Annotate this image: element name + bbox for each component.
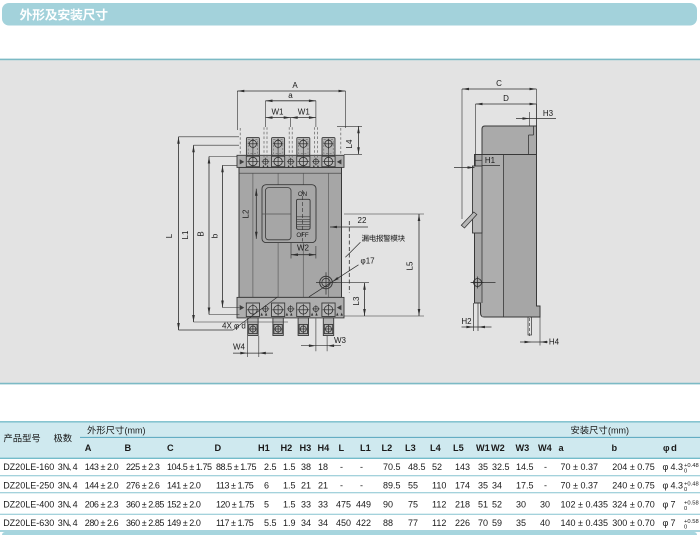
svg-text:4: 4 (73, 500, 78, 510)
svg-text:143: 143 (455, 462, 470, 472)
svg-text:0: 0 (684, 469, 687, 475)
svg-text:-: - (544, 462, 547, 472)
svg-text:52: 52 (432, 462, 442, 472)
svg-text:360 ± 2.85: 360 ± 2.85 (126, 518, 164, 528)
svg-text:b: b (612, 443, 618, 453)
svg-text:35: 35 (478, 481, 488, 491)
svg-text:143 ± 2.0: 143 ± 2.0 (85, 462, 119, 472)
svg-text:A: A (292, 81, 298, 90)
svg-text:33: 33 (318, 500, 328, 510)
svg-text:H4: H4 (318, 443, 331, 453)
svg-text:4: 4 (73, 462, 78, 472)
svg-text:B: B (125, 443, 132, 453)
svg-text:1.9: 1.9 (283, 518, 296, 528)
svg-text:W4: W4 (233, 342, 246, 351)
svg-text:L2: L2 (242, 209, 251, 218)
svg-text:21: 21 (301, 481, 311, 491)
svg-text:7: 7 (671, 500, 676, 510)
svg-text:a: a (559, 443, 565, 453)
svg-text:DZ20LE-160: DZ20LE-160 (3, 462, 54, 472)
svg-text:48.5: 48.5 (408, 462, 426, 472)
svg-text:1.5: 1.5 (283, 500, 296, 510)
svg-text:144 ± 2.0: 144 ± 2.0 (85, 481, 119, 491)
svg-text:324 ± 0.70: 324 ± 0.70 (612, 500, 654, 510)
svg-text:70.5: 70.5 (383, 462, 401, 472)
svg-text:70: 70 (478, 518, 488, 528)
svg-text:DZ20LE-400: DZ20LE-400 (3, 500, 54, 510)
svg-text:L: L (165, 233, 174, 238)
svg-text:φ: φ (663, 518, 669, 528)
svg-text:152 ± 2.0: 152 ± 2.0 (167, 500, 201, 510)
svg-text:280 ± 2.6: 280 ± 2.6 (85, 518, 119, 528)
svg-text:L: L (339, 443, 345, 453)
svg-text:L1: L1 (181, 230, 190, 239)
svg-text:4.3: 4.3 (671, 481, 684, 491)
svg-text:1.5: 1.5 (283, 481, 296, 491)
svg-text:1.5: 1.5 (283, 462, 296, 472)
svg-text:120 ± 1.75: 120 ± 1.75 (216, 500, 254, 510)
svg-text:-: - (544, 481, 547, 491)
svg-text:38: 38 (301, 462, 311, 472)
svg-text:34: 34 (301, 518, 311, 528)
svg-text:21: 21 (318, 481, 328, 491)
svg-text:D: D (215, 443, 222, 453)
svg-text:55: 55 (408, 481, 418, 491)
svg-text:-: - (360, 462, 363, 472)
svg-text:L1: L1 (360, 443, 371, 453)
svg-text:5.5: 5.5 (264, 518, 277, 528)
svg-text:5: 5 (264, 500, 269, 510)
svg-text:77: 77 (408, 518, 418, 528)
svg-text:B: B (197, 231, 206, 236)
svg-text:φ: φ (663, 500, 669, 510)
svg-text:-: - (340, 462, 343, 472)
svg-text:240 ± 0.75: 240 ± 0.75 (612, 481, 654, 491)
svg-text:102 ± 0.435: 102 ± 0.435 (561, 500, 608, 510)
svg-text:DZ20LE-250: DZ20LE-250 (3, 481, 54, 491)
svg-text:52: 52 (492, 500, 502, 510)
svg-text:112: 112 (432, 518, 446, 528)
svg-text:141 ± 2.0: 141 ± 2.0 (167, 481, 201, 491)
svg-text:φ: φ (663, 443, 670, 453)
svg-text:a: a (288, 91, 293, 100)
svg-text:(mm): (mm) (608, 426, 629, 436)
svg-text:35: 35 (478, 462, 488, 472)
svg-text:35: 35 (516, 518, 526, 528)
svg-text:DZ20LE-630: DZ20LE-630 (3, 518, 54, 528)
svg-text:4: 4 (73, 481, 78, 491)
svg-text:51: 51 (478, 500, 488, 510)
svg-text:225 ± 2.3: 225 ± 2.3 (126, 462, 160, 472)
svg-text:φ17: φ17 (361, 256, 376, 265)
svg-text:32.5: 32.5 (492, 462, 510, 472)
svg-text:276 ± 2.6: 276 ± 2.6 (126, 481, 160, 491)
svg-text:H3: H3 (543, 109, 554, 118)
svg-text:H1: H1 (485, 156, 496, 165)
svg-text:L5: L5 (406, 261, 415, 270)
svg-text:C: C (496, 79, 502, 88)
svg-text:4.3: 4.3 (671, 462, 684, 472)
svg-text:3N: 3N (58, 481, 70, 491)
svg-text:89.5: 89.5 (383, 481, 401, 491)
svg-text:17.5: 17.5 (516, 481, 534, 491)
svg-text:3N: 3N (58, 500, 70, 510)
svg-text:6: 6 (264, 481, 269, 491)
svg-text:33: 33 (301, 500, 311, 510)
svg-text:75: 75 (408, 500, 418, 510)
svg-text:149 ± 2.0: 149 ± 2.0 (167, 518, 201, 528)
svg-text:W3: W3 (516, 443, 530, 453)
svg-text:300 ± 0.70: 300 ± 0.70 (612, 518, 654, 528)
svg-text:W3: W3 (334, 336, 347, 345)
svg-text:110: 110 (432, 481, 446, 491)
svg-text:H1: H1 (258, 443, 270, 453)
svg-text:W4: W4 (538, 443, 553, 453)
svg-text:0: 0 (684, 506, 687, 512)
svg-text:W1: W1 (298, 108, 311, 117)
svg-text:W1: W1 (272, 108, 285, 117)
svg-text:H4: H4 (549, 338, 560, 347)
svg-text:360 ± 2.85: 360 ± 2.85 (126, 500, 164, 510)
svg-text:226: 226 (455, 518, 470, 528)
svg-text:4: 4 (73, 518, 78, 528)
svg-text:34: 34 (492, 481, 502, 491)
svg-text:0: 0 (684, 525, 687, 531)
svg-text:2.5: 2.5 (264, 462, 277, 472)
svg-text:3N: 3N (58, 518, 70, 528)
svg-text:117 ± 1.75: 117 ± 1.75 (216, 518, 254, 528)
svg-text:14.5: 14.5 (516, 462, 534, 472)
svg-text:70 ± 0.37: 70 ± 0.37 (561, 462, 598, 472)
svg-text:φ: φ (663, 481, 669, 491)
svg-text:88.5 ± 1.75: 88.5 ± 1.75 (216, 462, 256, 472)
svg-text:b: b (211, 233, 220, 238)
svg-text:18: 18 (318, 462, 328, 472)
svg-text:D: D (503, 94, 509, 103)
svg-text:A: A (85, 443, 92, 453)
svg-text:C: C (167, 443, 174, 453)
svg-text:88: 88 (383, 518, 393, 528)
svg-text:L2: L2 (382, 443, 393, 453)
svg-text:L3: L3 (352, 296, 361, 305)
svg-text:40: 40 (540, 518, 550, 528)
svg-text:W2: W2 (297, 244, 310, 253)
svg-text:70 ± 0.37: 70 ± 0.37 (561, 481, 598, 491)
svg-text:22: 22 (358, 216, 367, 225)
svg-text:30: 30 (540, 500, 550, 510)
svg-text:H3: H3 (300, 443, 312, 453)
svg-text:34: 34 (318, 518, 328, 528)
svg-text:H2: H2 (281, 443, 293, 453)
svg-text:104.5 ± 1.75: 104.5 ± 1.75 (167, 462, 212, 472)
svg-text:475: 475 (336, 500, 351, 510)
svg-text:L3: L3 (405, 443, 416, 453)
svg-text:-: - (340, 481, 343, 491)
svg-text:113 ± 1.75: 113 ± 1.75 (216, 481, 254, 491)
svg-text:L5: L5 (453, 443, 464, 453)
svg-text:422: 422 (356, 518, 371, 528)
svg-text:204 ± 0.75: 204 ± 0.75 (612, 462, 654, 472)
svg-text:W1: W1 (476, 443, 490, 453)
svg-text:3N: 3N (58, 462, 70, 472)
svg-text:206 ± 2.3: 206 ± 2.3 (85, 500, 119, 510)
svg-text:450: 450 (336, 518, 351, 528)
svg-text:d: d (671, 443, 677, 454)
svg-text:140 ± 0.435: 140 ± 0.435 (561, 518, 608, 528)
svg-text:0: 0 (684, 487, 687, 493)
svg-text:449: 449 (356, 500, 371, 510)
svg-text:112: 112 (432, 500, 446, 510)
svg-text:218: 218 (455, 500, 470, 510)
svg-text:7: 7 (671, 518, 676, 528)
svg-text:H2: H2 (461, 317, 472, 326)
svg-text:W2: W2 (491, 443, 505, 453)
svg-text:59: 59 (492, 518, 502, 528)
svg-text:30: 30 (516, 500, 526, 510)
svg-text:174: 174 (455, 481, 470, 491)
svg-text:L4: L4 (345, 139, 354, 148)
svg-text:90: 90 (383, 500, 393, 510)
svg-text:(mm): (mm) (125, 426, 146, 436)
svg-text:φ: φ (663, 462, 669, 472)
svg-text:L4: L4 (430, 443, 442, 453)
svg-text:-: - (360, 481, 363, 491)
